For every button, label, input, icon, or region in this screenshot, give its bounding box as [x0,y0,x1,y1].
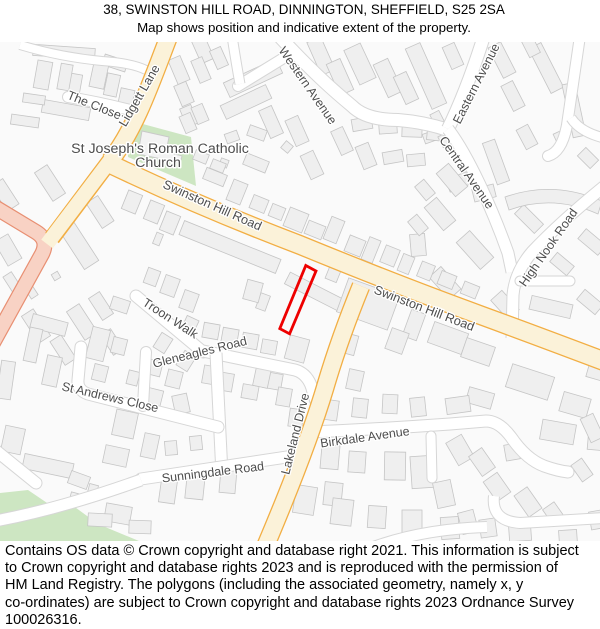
svg-text:Church: Church [135,155,181,171]
